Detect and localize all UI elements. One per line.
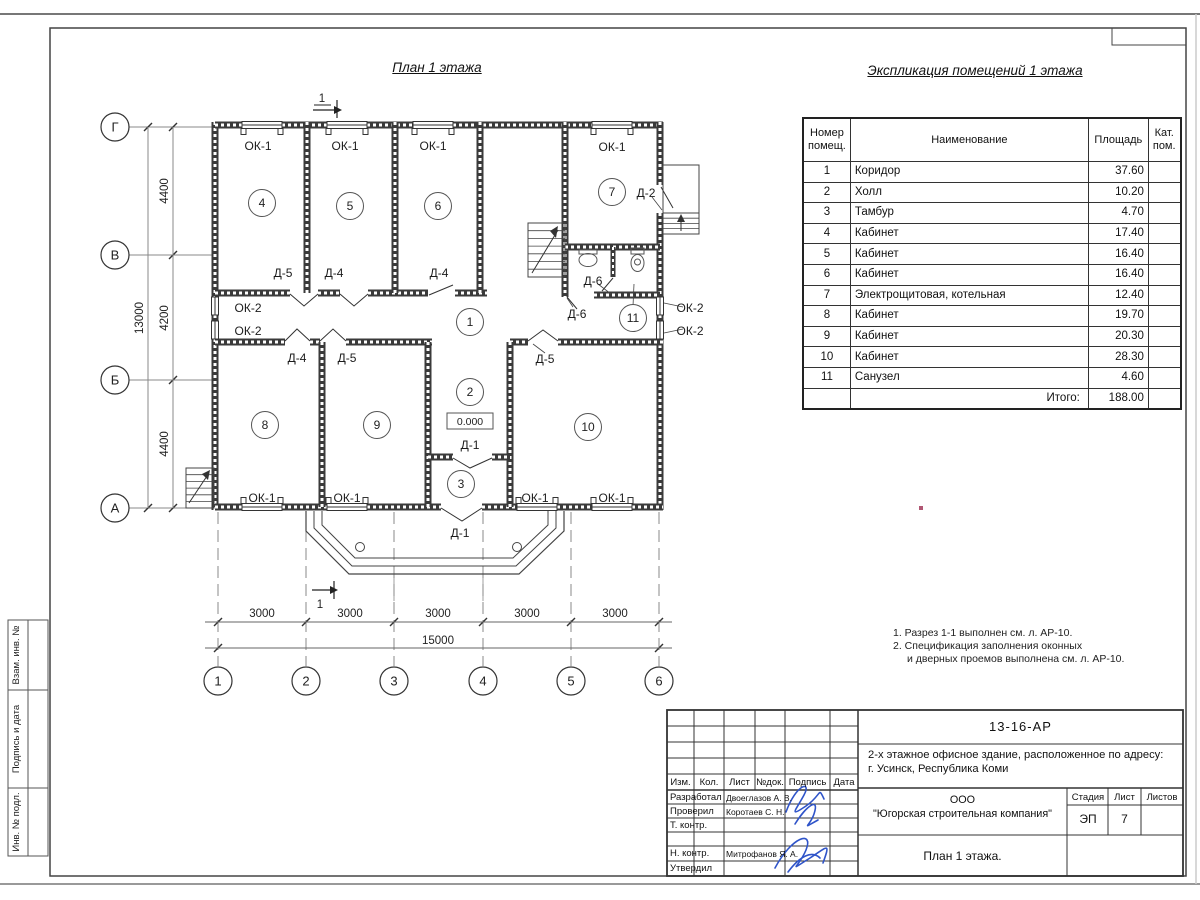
door-swing [441,508,482,521]
table-row: 2Холл10.20 [803,182,1181,203]
svg-text:1: 1 [319,93,325,105]
table-row: 7Электрощитовая, котельная12.40 [803,285,1181,306]
svg-text:3000: 3000 [425,608,451,620]
opening-label: Д-5 [274,266,293,280]
opening-label: ОК-1 [334,491,361,505]
corner-stamp-box [1112,28,1186,45]
opening-label: Д-6 [584,274,603,288]
sheets-label: Листов [1141,791,1183,805]
opening-label: Д-4 [288,351,307,365]
walls [215,122,663,510]
stage-label: Стадия [1068,791,1108,805]
doc-number: 13-16-АР [858,719,1183,734]
opening-label: Д-1 [461,438,480,452]
person-name: Коротаев С. Н. [726,805,830,819]
opening-label: ОК-1 [599,491,626,505]
table-row: 6Кабинет16.40 [803,264,1181,285]
table-total-row: Итого:188.00 [803,388,1181,409]
table-row: 11Санузел4.60 [803,367,1181,388]
role-label: Проверил [670,805,724,819]
svg-text:15000: 15000 [422,635,454,647]
svg-text:6: 6 [655,674,662,689]
svg-text:11: 11 [627,311,640,325]
svg-text:2: 2 [302,674,309,689]
opening-label: ОК-1 [332,139,359,153]
svg-text:3000: 3000 [337,608,363,620]
svg-text:4400: 4400 [159,178,171,204]
role-label: Т. контр. [670,819,724,833]
opening-label: ОК-1 [245,139,272,153]
elevation-marker: 0.000 [447,413,493,429]
svg-text:5: 5 [567,674,574,689]
table-header-row: Номер помещ.НаименованиеПлощадьКат. пом. [803,118,1181,162]
svg-text:1: 1 [467,315,474,329]
company-line2: "Югорская строительная компания" [860,808,1065,820]
opening-label: Д-2 [637,186,656,200]
svg-text:4: 4 [479,674,486,689]
opening-label: ОК-2 [235,324,262,338]
table-row: 5Кабинет16.40 [803,244,1181,265]
notes: 1. Разрез 1-1 выполнен см. л. АР-10.2. С… [893,627,1193,666]
stamp-col-header: Дата [821,776,867,790]
windows [212,122,664,511]
svg-text:0.000: 0.000 [457,416,483,428]
opening-label: Д-4 [325,266,344,280]
door-swing [528,330,558,341]
svg-text:3: 3 [458,477,465,491]
opening-label: Д-6 [568,307,587,321]
explication-title: Экспликация помещений 1 этажа [820,63,1130,78]
sidebar-label: Взам. инв. № [11,610,25,700]
svg-text:3000: 3000 [602,608,628,620]
svg-text:4200: 4200 [159,305,171,331]
svg-text:1: 1 [214,674,221,689]
opening-label: ОК-1 [420,139,447,153]
svg-text:3: 3 [390,674,397,689]
project-name-line2: г. Усинск, Республика Коми [868,762,1180,776]
opening-label: ОК-1 [249,491,276,505]
column-header: Площадь [1088,118,1148,162]
sheet-label: Лист [1108,791,1141,805]
role-label: Н. контр. [670,847,724,861]
table-row: 3Тамбур4.70 [803,203,1181,224]
svg-text:В: В [111,248,120,263]
stage-value: ЭП [1068,812,1108,826]
sheet-title: План 1 этажа. [860,849,1065,863]
porch-column [356,543,365,552]
note-line: 2. Спецификация заполнения оконных [893,640,1193,653]
door-swing [320,329,346,341]
role-label: Разработал [670,791,724,805]
porch [306,511,564,574]
opening-label: ОК-1 [599,140,626,154]
opening-label: ОК-2 [677,301,704,315]
svg-text:9: 9 [374,418,381,432]
table-row: 1Коридор37.60 [803,162,1181,183]
opening-label: ОК-1 [522,491,549,505]
person-name: Митрофанов Я. А. [726,847,830,861]
door-swing [429,285,453,295]
column-header: Наименование [850,118,1088,162]
opening-label: Д-5 [338,351,357,365]
table-row: 4Кабинет17.40 [803,223,1181,244]
plan-title: План 1 этажа [337,60,537,75]
svg-text:3000: 3000 [249,608,275,620]
explication-table: Номер помещ.НаименованиеПлощадьКат. пом.… [802,117,1182,410]
role-label: Утвердил [670,862,724,876]
svg-text:13000: 13000 [134,302,146,334]
svg-text:4400: 4400 [159,431,171,457]
sidebar-label: Инв. № подл. [11,777,25,867]
svg-text:А: А [111,501,120,516]
section-mark-top: 1 [313,93,342,118]
svg-text:Б: Б [111,373,120,388]
project-name-line1: 2-х этажное офисное здание, расположенно… [868,748,1180,762]
opening-label: Д-5 [536,352,555,366]
door-swing [340,294,368,306]
opening-label: ОК-2 [235,301,262,315]
red-mark [919,506,923,510]
door-swing [453,458,492,468]
svg-text:7: 7 [609,185,616,199]
door-swing [290,294,318,306]
column-header: Кат. пом. [1148,118,1180,162]
opening-label: ОК-2 [677,324,704,338]
company-line1: ООО [860,794,1065,806]
svg-text:5: 5 [347,199,354,213]
sidebar-label: Подпись и дата [11,694,25,784]
svg-text:3000: 3000 [514,608,540,620]
exterior-landing-right [663,165,699,213]
svg-text:1: 1 [317,599,323,611]
opening-label: Д-1 [451,526,470,540]
svg-text:8: 8 [262,418,269,432]
table-row: 8Кабинет19.70 [803,306,1181,327]
door-swing [285,329,310,341]
person-name: Двоеглазов А. В. [726,791,830,805]
svg-text:4: 4 [259,196,266,210]
note-line: 1. Разрез 1-1 выполнен см. л. АР-10. [893,627,1193,640]
svg-text:6: 6 [435,199,442,213]
sheet-number: 7 [1108,812,1141,826]
svg-text:2: 2 [467,385,474,399]
door-swing [602,278,613,291]
plan-details [186,165,699,601]
table-row: 9Кабинет20.30 [803,326,1181,347]
opening-label: Д-4 [430,266,449,280]
svg-text:Г: Г [111,120,118,135]
porch-column [513,543,522,552]
note-line: и дверных проемов выполнена см. л. АР-10… [893,653,1193,666]
axis-grid: ГВБА123456 [101,113,673,695]
column-header: Номер помещ. [803,118,850,162]
section-mark-bottom: 1 [312,581,338,611]
table-row: 10Кабинет28.30 [803,347,1181,368]
svg-text:10: 10 [581,420,595,434]
drawing-sheet: ГВБА123456 30003000300030003000150004400… [0,0,1200,900]
